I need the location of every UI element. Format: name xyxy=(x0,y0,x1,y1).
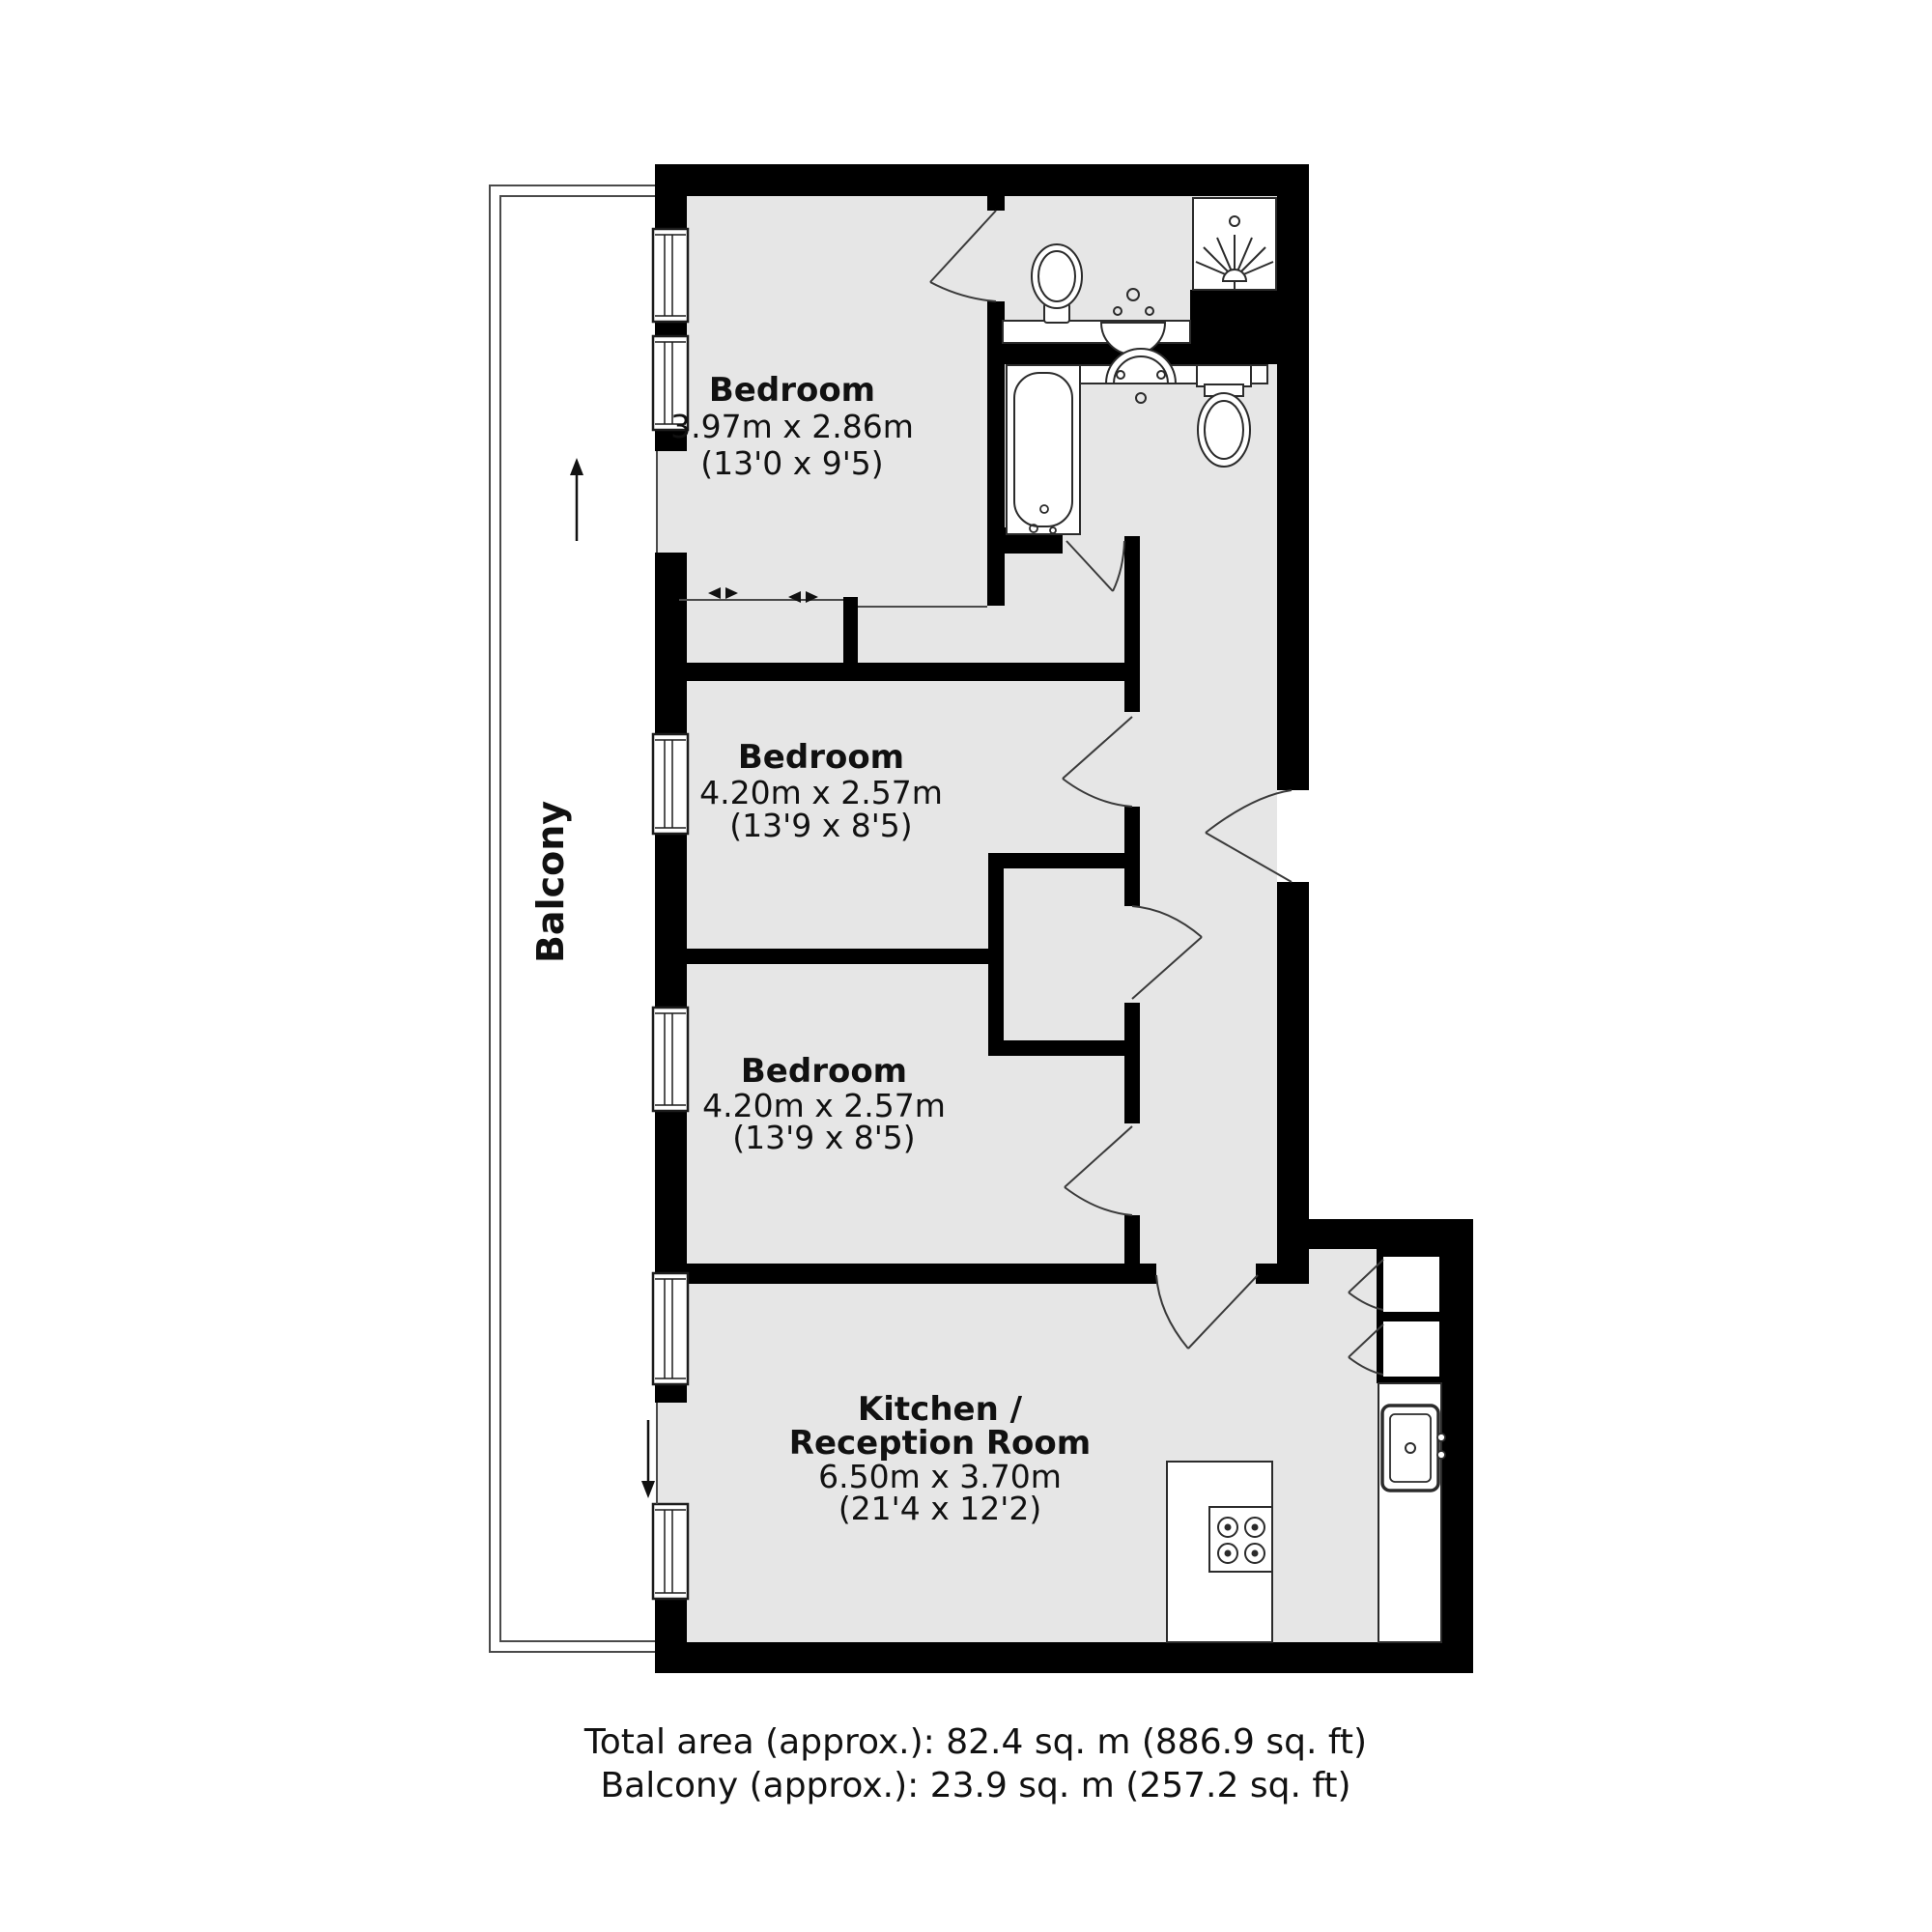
floor-plan-drawing: Bedroom 3.97m x 2.86m (13'0 x 9'5) Bedro… xyxy=(0,0,1932,1932)
bedroom3-imperial: (13'9 x 8'5) xyxy=(732,1119,915,1156)
wall-bedroom1-2-divider xyxy=(687,663,1140,681)
wall-closet-left xyxy=(988,868,1004,1040)
wall-kitchen-right xyxy=(1441,1249,1473,1673)
wall-left-seg5 xyxy=(655,834,687,1008)
wall-top xyxy=(655,164,1309,196)
bedroom1-name: Bedroom xyxy=(709,371,875,410)
window-icon xyxy=(653,229,688,322)
wall-bedroom3-kitchen-divider xyxy=(687,1264,1156,1284)
balcony-label: Balcony xyxy=(529,801,572,963)
wall-hall-left-upper xyxy=(1124,536,1140,712)
wall-bedroom1-door-stub xyxy=(987,196,1005,211)
arrow-down-icon xyxy=(641,1420,655,1498)
stove-icon xyxy=(1209,1507,1272,1572)
wall-sliding-stub xyxy=(843,597,858,667)
arrow-up-icon xyxy=(570,458,583,541)
bathtub-icon xyxy=(1007,365,1080,534)
kitchen-name-line2: Reception Room xyxy=(789,1424,1091,1463)
balcony-outline xyxy=(490,185,655,1652)
footer-balcony-area: Balcony (approx.): 23.9 sq. m (257.2 sq.… xyxy=(600,1766,1350,1805)
window-icon xyxy=(653,734,688,834)
balcony-openings xyxy=(570,451,657,1504)
wall-closet-bottom xyxy=(988,1040,1140,1056)
bedroom2-name: Bedroom xyxy=(738,738,904,777)
window-icon xyxy=(653,1008,688,1111)
shower-icon xyxy=(1193,198,1276,290)
cupboard-niche-1 xyxy=(1383,1257,1439,1312)
bedroom2-imperial: (13'9 x 8'5) xyxy=(729,807,912,844)
wall-under-shower xyxy=(1190,290,1309,364)
kitchen-imperial: (21'4 x 12'2) xyxy=(838,1490,1041,1527)
wall-bottom xyxy=(655,1642,1473,1673)
kitchen-sink-icon xyxy=(1382,1406,1445,1491)
cupboard-niche-2 xyxy=(1383,1321,1439,1377)
wall-bedroom3-right xyxy=(1124,1056,1140,1123)
kitchen-name-line1: Kitchen / xyxy=(858,1390,1023,1429)
wall-left-seg1 xyxy=(655,164,687,229)
toilet-icon xyxy=(1197,365,1251,467)
wall-right-upper xyxy=(1277,164,1309,790)
bedroom1-metric: 3.97m x 2.86m xyxy=(670,408,914,445)
footer-total-area: Total area (approx.): 82.4 sq. m (886.9 … xyxy=(583,1722,1367,1762)
balcony-inner-line xyxy=(500,196,655,1641)
floor-plan-page: Bedroom 3.97m x 2.86m (13'0 x 9'5) Bedro… xyxy=(0,0,1932,1932)
wall-kitchen-doorway-right xyxy=(1256,1264,1309,1284)
wall-closet-right-upper xyxy=(1124,868,1140,906)
bedroom3-name: Bedroom xyxy=(741,1052,907,1091)
wall-closet-top xyxy=(988,853,1140,868)
wall-jog xyxy=(1277,1219,1473,1249)
window-icon xyxy=(653,1504,688,1599)
balcony-outer-line xyxy=(490,185,655,1652)
window-icon xyxy=(653,1273,688,1384)
wall-bedroom2-3-divider xyxy=(687,949,988,964)
bedroom1-imperial: (13'0 x 9'5) xyxy=(700,444,883,482)
wall-left-seg4 xyxy=(655,553,687,734)
wall-left-seg7 xyxy=(655,1384,687,1403)
wall-left-seg6 xyxy=(655,1111,687,1273)
wall-left-seg2 xyxy=(655,322,687,336)
wall-closet-right-lower xyxy=(1124,1003,1140,1040)
